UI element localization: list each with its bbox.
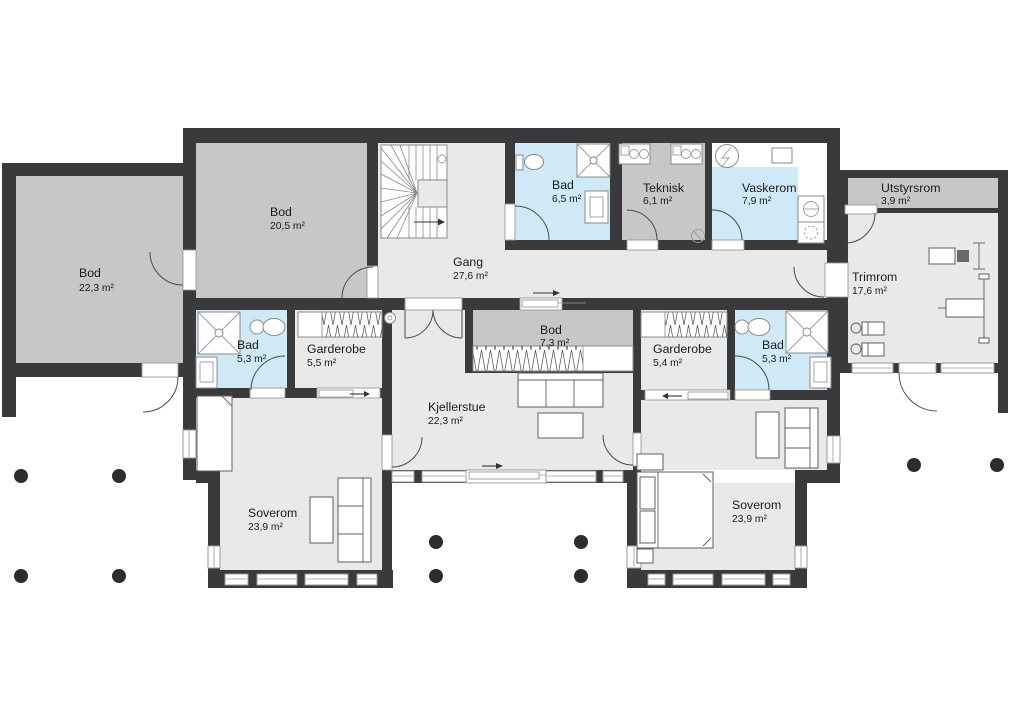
area-soverom-left: 23,9 m² (248, 522, 283, 533)
bed (197, 396, 232, 471)
post (990, 458, 1004, 472)
sofa (518, 373, 603, 407)
door-bod-annex (183, 250, 196, 290)
post (429, 569, 443, 583)
area-bad-right: 5,3 m² (762, 354, 792, 365)
door-bad65 (505, 204, 515, 240)
washing-machine-icon (798, 222, 824, 243)
area-teknisk: 6,1 m² (643, 196, 673, 207)
door-bod-main (367, 266, 378, 298)
electrical-panel-icon (716, 145, 739, 168)
door-teknisk (627, 240, 658, 250)
door-trimrom (845, 205, 877, 214)
side-table (756, 412, 779, 458)
door-gang-trimrom (825, 263, 848, 297)
toilet-icon (735, 319, 770, 336)
label-soverom-left: Soverom (248, 506, 297, 520)
shower-icon (786, 311, 828, 353)
label-kjellerstue: Kjellerstue (428, 400, 486, 414)
wardrobe-icon (298, 312, 396, 337)
door-kjellerstue-soverom-left (382, 435, 392, 470)
stair-void (418, 180, 447, 207)
label-garderobe-left: Garderobe (307, 342, 366, 356)
label-teknisk: Teknisk (643, 181, 685, 195)
post (14, 569, 28, 583)
label-bod-center: Bod (540, 323, 562, 337)
double-bed (637, 454, 713, 563)
coffee-table (538, 413, 583, 438)
post (112, 469, 126, 483)
shower-icon (198, 312, 240, 354)
label-utstyrsrom: Utstyrsrom (881, 181, 940, 195)
door-trimrom-exterior (899, 363, 936, 373)
area-trimrom: 17,6 m² (852, 286, 887, 297)
sofa (785, 408, 818, 468)
area-garderobe-left: 5,5 m² (307, 358, 337, 369)
area-bad-left: 5,3 m² (237, 354, 267, 365)
area-vaskerom: 7,9 m² (742, 196, 772, 207)
area-bad65: 6,5 m² (552, 194, 582, 205)
door-vaskerom (712, 240, 744, 250)
wardrobe-icon (641, 312, 727, 337)
sink-icon (810, 357, 831, 388)
post (907, 458, 921, 472)
label-bod-annex: Bod (79, 266, 101, 280)
area-gang: 27,6 m² (453, 271, 488, 282)
post (429, 535, 443, 549)
toilet-icon (250, 319, 285, 336)
label-bod-main: Bod (270, 205, 292, 219)
post (574, 535, 588, 549)
sink-icon (196, 357, 217, 388)
label-gang: Gang (453, 255, 483, 269)
staircase (381, 145, 447, 238)
area-bod-annex: 22,3 m² (79, 283, 114, 294)
label-bad65: Bad (552, 178, 574, 192)
shower-icon (577, 144, 610, 177)
post (14, 469, 28, 483)
post (112, 569, 126, 583)
double-door-kjellerstue (405, 298, 462, 310)
laundry-sink-icon (798, 196, 824, 222)
area-utstyrsrom: 3,9 m² (881, 196, 911, 207)
side-table (310, 497, 333, 543)
floor-plan-page: Bod 22,3 m² Bod 20,5 m² Gang 27,6 m² Bad… (0, 0, 1018, 720)
area-soverom-right: 23,9 m² (732, 514, 767, 525)
sink-icon (585, 191, 608, 223)
area-bod-main: 20,5 m² (270, 221, 305, 232)
label-soverom-right: Soverom (732, 498, 781, 512)
post (574, 569, 588, 583)
door-bad-right (735, 390, 770, 400)
toilet-icon (516, 155, 544, 171)
label-bad-left: Bad (237, 338, 259, 352)
area-bod-center: 7,3 m² (540, 338, 570, 349)
label-bad-right: Bad (762, 338, 784, 352)
sofa (338, 478, 371, 562)
vent-icon (772, 148, 792, 163)
label-garderobe-right: Garderobe (653, 342, 712, 356)
floor-plan-canvas: Bod 22,3 m² Bod 20,5 m² Gang 27,6 m² Bad… (0, 0, 1018, 720)
wardrobe-icon (473, 346, 633, 371)
label-trimrom: Trimrom (852, 270, 897, 284)
area-garderobe-right: 5,4 m² (653, 358, 683, 369)
label-vaskerom: Vaskerom (742, 181, 796, 195)
area-kjellerstue: 22,3 m² (428, 416, 463, 427)
door-annex-exterior (142, 363, 178, 377)
door-bad-left (250, 388, 285, 398)
